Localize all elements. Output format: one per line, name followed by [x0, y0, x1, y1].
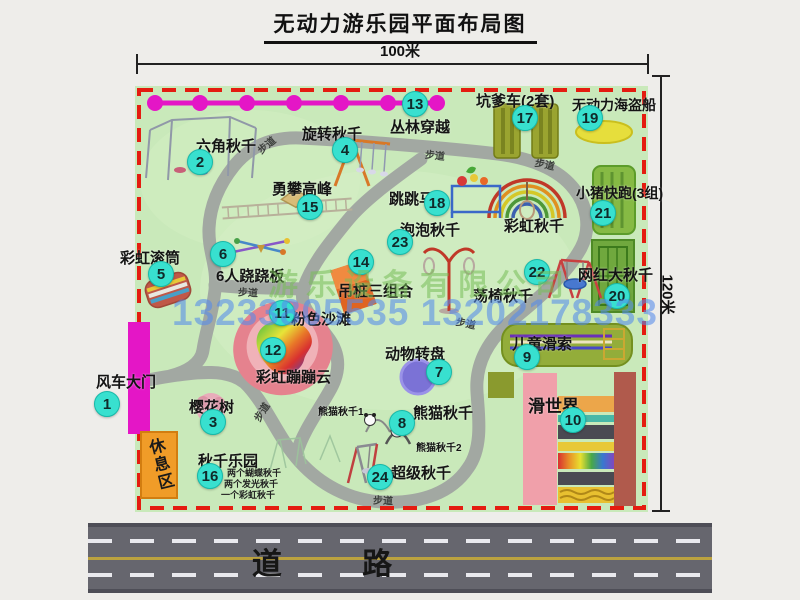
- watermark-phone: 13233805535 13202178333: [172, 292, 658, 334]
- attraction-badge-17: 17: [512, 105, 538, 131]
- attraction-badge-9: 9: [514, 344, 540, 370]
- dimension-tick: [652, 75, 670, 77]
- attraction-badge-16: 16: [197, 463, 223, 489]
- map-label-extra: 熊猫秋千1: [318, 403, 364, 418]
- dimension-tick: [647, 54, 649, 74]
- attraction-badge-7: 7: [426, 359, 452, 385]
- dimension-tick: [136, 54, 138, 74]
- dimension-line-top: [137, 63, 648, 65]
- attraction-badge-12: 12: [260, 337, 286, 363]
- attraction-badge-24: 24: [367, 464, 393, 490]
- map-label-extra: 熊猫秋千2: [416, 439, 462, 454]
- page-title: 无动力游乐园平面布局图: [264, 8, 537, 44]
- page-title-wrap: 无动力游乐园平面布局图: [0, 8, 800, 44]
- attraction-badge-3: 3: [200, 409, 226, 435]
- attraction-badge-6: 6: [210, 241, 236, 267]
- attraction-badge-1: 1: [94, 391, 120, 417]
- attraction-label-20: 网红大秋千: [578, 264, 653, 285]
- road: 道 路: [88, 523, 712, 593]
- attraction-badge-13: 13: [402, 91, 428, 117]
- walkway-label: 步道: [373, 492, 394, 508]
- attraction-badge-21: 21: [590, 200, 616, 226]
- dimension-label-height: 120米: [658, 274, 679, 314]
- map-label-extra: 彩虹秋千: [504, 215, 564, 236]
- attraction-badge-2: 2: [187, 149, 213, 175]
- dimension-tick: [652, 510, 670, 512]
- swing-park-note: 一个彩虹秋千: [221, 488, 275, 501]
- attraction-badge-4: 4: [332, 137, 358, 163]
- attraction-label-1: 风车大门: [96, 371, 156, 392]
- attraction-badge-19: 19: [577, 105, 603, 131]
- attraction-label-21: 小猪快跑(3组): [576, 183, 663, 203]
- attraction-label-13: 丛林穿越: [390, 116, 450, 137]
- attraction-label-8: 熊猫秋千: [413, 402, 473, 423]
- attraction-badge-15: 15: [297, 194, 323, 220]
- attraction-badge-10: 10: [560, 407, 586, 433]
- rest-area: 休息区: [140, 431, 178, 499]
- attraction-badge-5: 5: [148, 261, 174, 287]
- attraction-badge-8: 8: [389, 410, 415, 436]
- rest-area-label: 休息区: [141, 436, 177, 494]
- park-plan-poster: 无动力游乐园平面布局图 100米 120米: [0, 0, 800, 600]
- walkway-label: 步道: [424, 146, 445, 163]
- dimension-label-width: 100米: [340, 40, 460, 61]
- road-label: 道 路: [252, 539, 428, 583]
- attraction-badge-18: 18: [424, 190, 450, 216]
- attraction-label-12: 彩虹蹦蹦云: [256, 366, 331, 387]
- attraction-badge-23: 23: [387, 229, 413, 255]
- attraction-label-24: 超级秋千: [391, 462, 451, 483]
